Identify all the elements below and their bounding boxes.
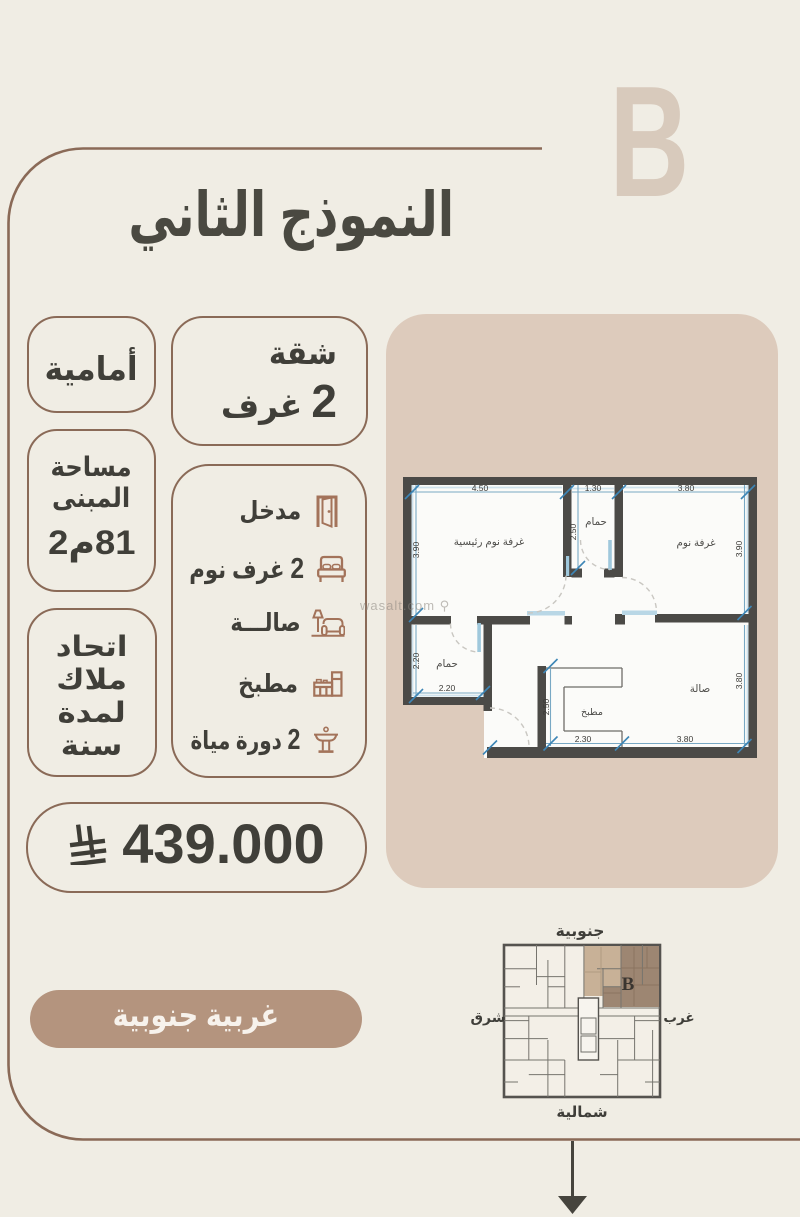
svg-text:B: B — [622, 974, 635, 995]
svg-text:شرق: شرق — [471, 1009, 506, 1026]
svg-text:جنوبية: جنوبية — [556, 923, 605, 940]
svg-text:غرب: غرب — [663, 1010, 694, 1025]
svg-text:شمالية: شمالية — [556, 1104, 607, 1121]
